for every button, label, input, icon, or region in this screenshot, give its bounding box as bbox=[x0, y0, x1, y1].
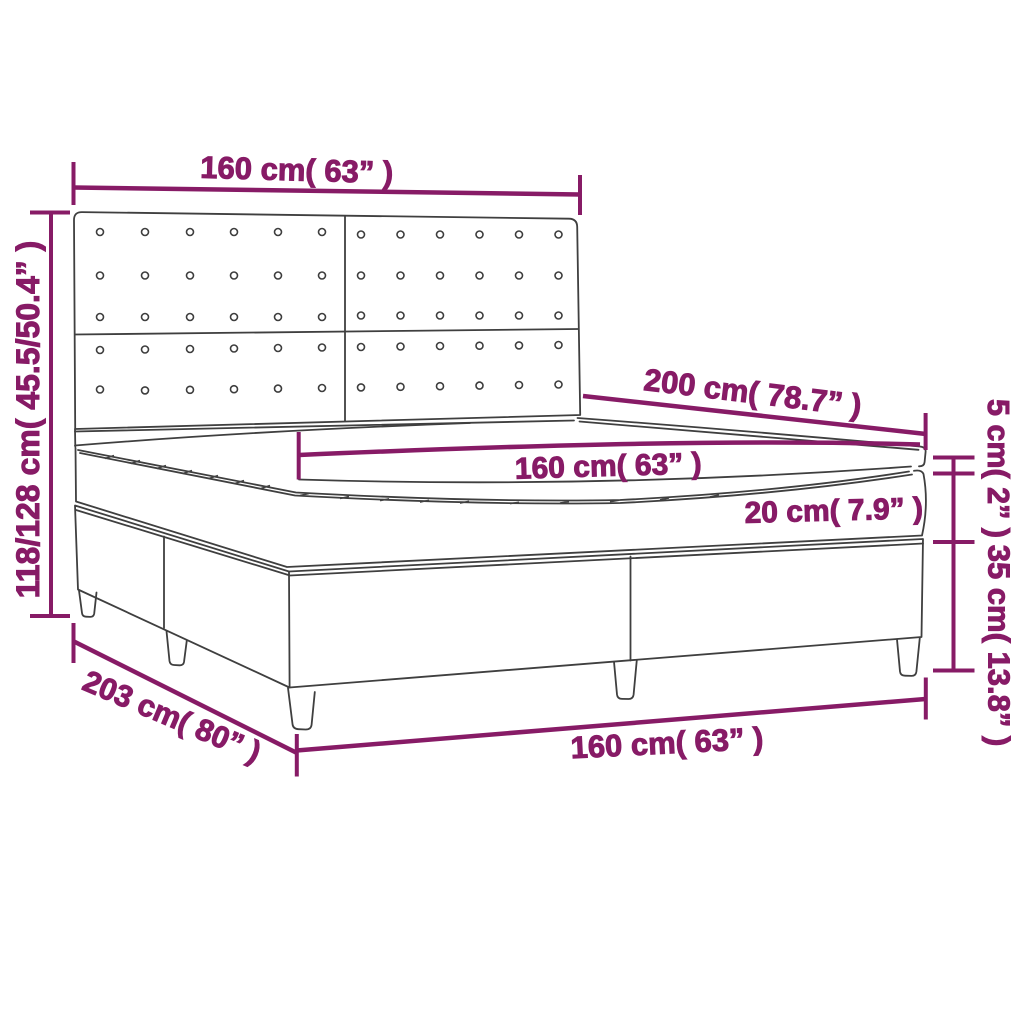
svg-text:5 cm( 2” ): 5 cm( 2” ) bbox=[981, 399, 1015, 538]
svg-text:35 cm( 13.8” ): 35 cm( 13.8” ) bbox=[982, 545, 1017, 747]
svg-text:160 cm( 63” ): 160 cm( 63” ) bbox=[200, 150, 394, 190]
svg-text:20 cm( 7.9” ): 20 cm( 7.9” ) bbox=[744, 492, 923, 530]
svg-text:118/128 cm( 45.5/50.4” ): 118/128 cm( 45.5/50.4” ) bbox=[10, 241, 46, 599]
svg-text:160 cm( 63” ): 160 cm( 63” ) bbox=[514, 447, 702, 486]
